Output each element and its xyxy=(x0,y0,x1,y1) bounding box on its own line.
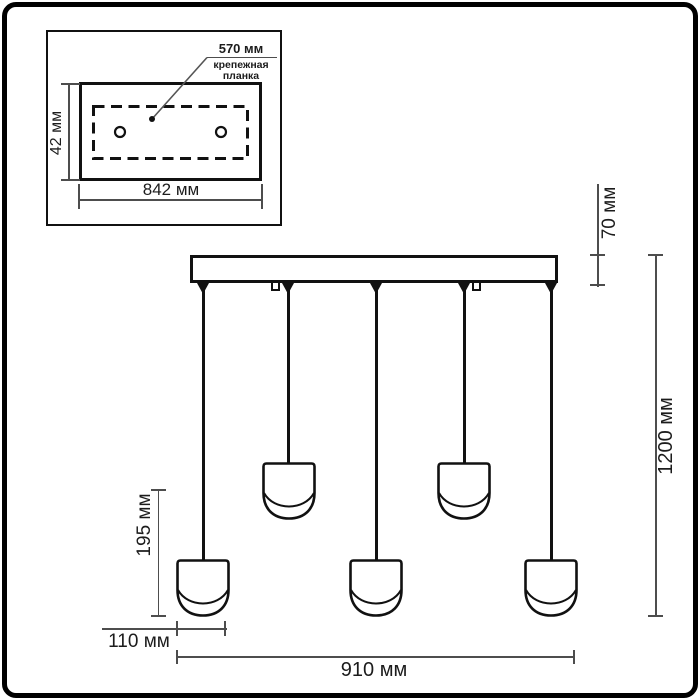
shade-outline xyxy=(264,464,315,519)
hook-right xyxy=(472,283,481,291)
hole-spacing-underline xyxy=(207,57,277,59)
total-height-label: 1200 мм xyxy=(656,381,680,491)
cord-1 xyxy=(202,283,205,562)
lamp-shade-1 xyxy=(176,559,230,617)
diagram-page: 570 мм крепежная планка 42 мм 842 мм xyxy=(0,0,700,700)
plate-name-line2: планка xyxy=(199,71,283,82)
shade-outline xyxy=(178,561,229,616)
shade-width-dim-line xyxy=(102,628,227,630)
plate-name-label: крепежная планка xyxy=(199,60,283,82)
shade-outline xyxy=(439,464,490,519)
plate-height-dim-tick-top xyxy=(61,83,80,85)
span-width-label: 910 мм xyxy=(322,660,426,681)
shade-drop-dim-line xyxy=(158,490,160,617)
total-height-dim-tick-bottom xyxy=(648,615,663,617)
lamp-shade-4 xyxy=(437,462,491,520)
cord-grip-3 xyxy=(370,283,382,294)
ceiling-bar xyxy=(190,255,558,283)
hole-spacing-label: 570 мм xyxy=(205,42,277,56)
lamp-shade-2 xyxy=(262,462,316,520)
shade-width-label: 110 мм xyxy=(100,632,178,652)
cord-4 xyxy=(463,283,466,465)
mounting-hole-right xyxy=(216,127,226,137)
span-width-dim-tick-left xyxy=(176,650,178,664)
shade-outline xyxy=(351,561,402,616)
shade-outline xyxy=(526,561,577,616)
plate-width-dim-line xyxy=(79,199,263,201)
plate-height-label: 42 мм xyxy=(49,98,69,168)
plate-width-dim-tick-left xyxy=(78,184,80,209)
canopy-height-dim-tick-bottom xyxy=(590,284,605,286)
shade-width-dim-tick-right xyxy=(224,621,226,636)
leader-dot xyxy=(149,116,155,122)
shade-drop-label: 195 мм xyxy=(135,480,157,570)
plate-height-dim-tick-bottom xyxy=(61,179,80,181)
canopy-height-label: 70 мм xyxy=(600,168,622,258)
shade-drop-dim-tick-bottom xyxy=(151,615,166,617)
span-width-dim-tick-right xyxy=(573,650,575,664)
mounting-hole-left xyxy=(115,127,125,137)
hook-left xyxy=(271,283,280,291)
cord-grip-5 xyxy=(545,283,557,294)
cord-2 xyxy=(287,283,290,465)
cord-5 xyxy=(550,283,553,562)
lamp-shade-5 xyxy=(524,559,578,617)
plate-width-label: 842 мм xyxy=(121,181,221,199)
cord-grip-2 xyxy=(282,283,294,294)
cord-grip-4 xyxy=(458,283,470,294)
plate-width-dim-tick-right xyxy=(261,184,263,209)
total-height-dim-tick-top xyxy=(648,254,663,256)
lamp-shade-3 xyxy=(349,559,403,617)
cord-grip-1 xyxy=(197,283,209,294)
span-width-dim-line xyxy=(177,656,575,658)
cord-3 xyxy=(375,283,378,562)
